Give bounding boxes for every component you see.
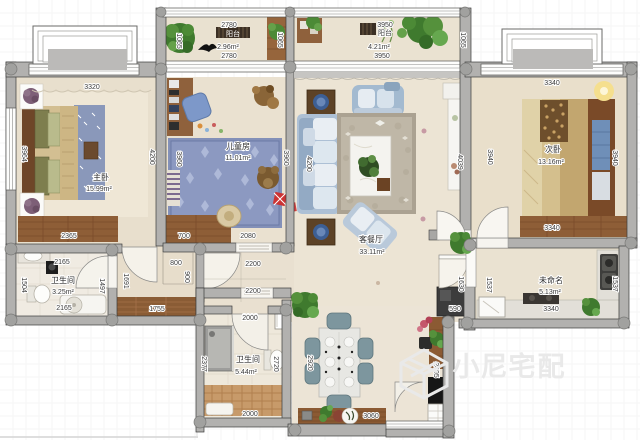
svg-text:3340: 3340 xyxy=(544,225,560,232)
svg-text:2165: 2165 xyxy=(54,259,70,266)
svg-text:儿童房: 儿童房 xyxy=(226,141,250,151)
svg-text:5.44m²: 5.44m² xyxy=(235,369,257,376)
svg-text:13.16m²: 13.16m² xyxy=(538,159,564,166)
svg-text:2780: 2780 xyxy=(221,22,237,29)
svg-text:800: 800 xyxy=(170,260,182,267)
svg-text:3.25m²: 3.25m² xyxy=(52,289,74,296)
svg-text:配: 配 xyxy=(538,352,565,382)
svg-text:1630: 1630 xyxy=(457,276,464,292)
svg-text:未命名: 未命名 xyxy=(539,275,563,285)
svg-text:2165: 2165 xyxy=(56,305,72,312)
svg-text:3340: 3340 xyxy=(543,306,559,313)
svg-text:3960: 3960 xyxy=(175,151,182,167)
svg-text:700: 700 xyxy=(178,233,190,240)
svg-text:卫生间: 卫生间 xyxy=(236,354,260,364)
svg-text:1755: 1755 xyxy=(149,306,165,313)
svg-text:2780: 2780 xyxy=(221,53,237,60)
svg-text:2920: 2920 xyxy=(306,355,313,371)
svg-text:1537: 1537 xyxy=(485,277,492,293)
svg-text:小: 小 xyxy=(453,352,480,382)
svg-text:3950: 3950 xyxy=(374,53,390,60)
svg-text:2000: 2000 xyxy=(242,315,258,322)
svg-text:2080: 2080 xyxy=(240,233,256,240)
svg-text:4200: 4200 xyxy=(305,156,312,172)
svg-text:1537: 1537 xyxy=(611,276,618,292)
svg-text:3320: 3320 xyxy=(84,84,100,91)
svg-text:次卧: 次卧 xyxy=(545,144,561,154)
svg-text:2000: 2000 xyxy=(242,411,258,418)
svg-text:2365: 2365 xyxy=(61,233,77,240)
svg-text:2200: 2200 xyxy=(245,288,261,295)
svg-text:15.99m²: 15.99m² xyxy=(86,186,112,193)
svg-text:卫生间: 卫生间 xyxy=(51,275,75,285)
svg-text:尼: 尼 xyxy=(481,352,508,382)
svg-text:5.13m²: 5.13m² xyxy=(539,289,561,296)
svg-text:1065: 1065 xyxy=(276,32,283,48)
svg-text:1504: 1504 xyxy=(20,277,27,293)
svg-text:3964: 3964 xyxy=(20,146,27,162)
svg-text:主卧: 主卧 xyxy=(93,172,109,182)
svg-text:590: 590 xyxy=(449,306,461,313)
svg-text:33.11m²: 33.11m² xyxy=(359,249,385,256)
svg-text:900: 900 xyxy=(183,271,190,283)
svg-text:3960: 3960 xyxy=(282,150,289,166)
svg-text:2377: 2377 xyxy=(200,356,207,372)
svg-text:1065: 1065 xyxy=(175,33,182,49)
svg-text:3060: 3060 xyxy=(363,413,379,420)
svg-text:1497: 1497 xyxy=(98,278,105,294)
svg-text:4039: 4039 xyxy=(456,154,463,170)
svg-text:阳台: 阳台 xyxy=(226,29,240,38)
svg-text:3950: 3950 xyxy=(377,22,393,29)
svg-text:1691: 1691 xyxy=(122,273,129,289)
svg-text:3940: 3940 xyxy=(486,149,493,165)
svg-text:阳台: 阳台 xyxy=(378,28,392,37)
svg-text:4.21m²: 4.21m² xyxy=(368,44,390,51)
svg-text:2720: 2720 xyxy=(272,356,279,372)
svg-text:11.01m²: 11.01m² xyxy=(225,155,251,162)
svg-text:客餐厅: 客餐厅 xyxy=(359,234,383,244)
svg-text:3340: 3340 xyxy=(544,80,560,87)
svg-text:2.96m²: 2.96m² xyxy=(217,44,239,51)
svg-text:2200: 2200 xyxy=(245,261,261,268)
svg-text:4200: 4200 xyxy=(148,149,155,165)
svg-text:3940: 3940 xyxy=(611,150,618,166)
svg-text:宅: 宅 xyxy=(509,351,536,382)
svg-text:1065: 1065 xyxy=(459,32,466,48)
